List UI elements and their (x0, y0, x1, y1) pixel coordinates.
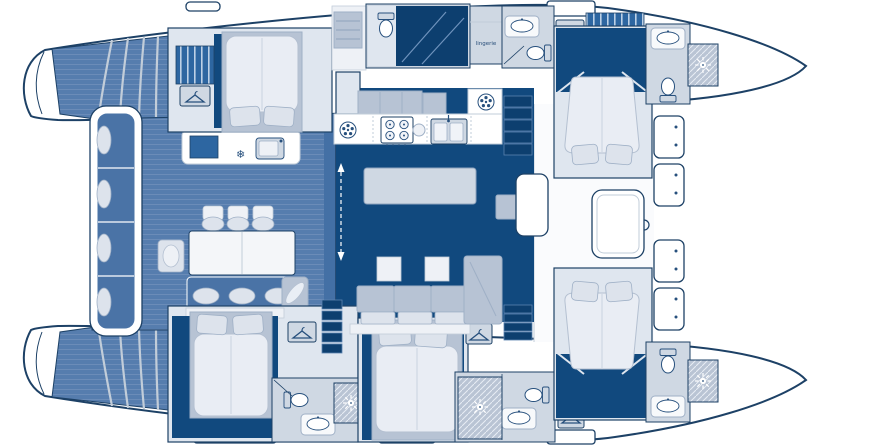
stove-burners-icon (381, 117, 413, 146)
starboard-stern-steps (52, 327, 168, 410)
washbasin-icon (651, 396, 685, 417)
double-bed (372, 320, 462, 440)
starboard-forward-cabin (554, 268, 652, 420)
pillow (229, 106, 260, 127)
deck-hatch (654, 240, 684, 282)
starboard-mid-head (455, 372, 555, 442)
pillow (232, 314, 263, 335)
washbasin-icon (651, 28, 685, 49)
vent-fan-icon (340, 122, 356, 138)
starboard-aft-stairs (322, 300, 342, 353)
pillow (263, 106, 294, 127)
forward-seat (516, 174, 548, 236)
saloon-landing (336, 72, 360, 114)
cockpit-bench (90, 106, 142, 336)
port-fwd-head (502, 6, 554, 68)
galley (334, 89, 502, 146)
toilet-icon (378, 13, 394, 37)
lingerie-locker: lingerie (470, 6, 502, 64)
hanging-locker (288, 322, 316, 342)
starboard-bow-hatches (654, 240, 684, 330)
galley-double-sink-icon (431, 115, 467, 144)
wardrobe-strip (586, 13, 644, 26)
port-mid-head (366, 4, 470, 68)
forward-stairs-port (504, 96, 532, 155)
dining-chair (227, 206, 249, 231)
shower-sun-icon (695, 57, 711, 73)
toilet-icon (284, 392, 308, 408)
port-aft-companionway (332, 6, 366, 70)
washbasin-icon (505, 16, 539, 37)
cockpit: ❄ (90, 106, 336, 336)
catamaran-floorplan: ❄ (0, 0, 890, 446)
starboard-aft-head (272, 378, 370, 442)
double-bed (190, 312, 272, 418)
lingerie-label: lingerie (476, 41, 497, 47)
side-seat (158, 240, 184, 272)
deck-hatch (654, 116, 684, 158)
corner-seat (282, 277, 308, 309)
pillow (196, 314, 227, 335)
snowflake-icon: ❄ (236, 148, 245, 161)
saloon (334, 72, 534, 322)
cockpit-wetbar: ❄ (182, 130, 300, 164)
pillow (571, 144, 599, 165)
port-aft-cabin (168, 28, 332, 132)
shower-sun-icon (343, 395, 359, 411)
saloon-table (364, 168, 476, 204)
pillow (605, 281, 633, 302)
wardrobe (176, 46, 214, 84)
deck-hatch (654, 164, 684, 206)
double-bed (565, 77, 639, 165)
port-bow-hatches (654, 116, 684, 206)
galley-upper-cabinets (358, 91, 422, 115)
round-sink (413, 124, 425, 136)
shower-sun-icon (695, 373, 711, 389)
port-forward-cabin (554, 26, 652, 178)
toilet-icon (660, 78, 676, 102)
double-bed (222, 32, 302, 132)
double-bed (565, 281, 639, 369)
washbasin-icon (301, 414, 335, 435)
starboard-mid-stairs (504, 305, 532, 340)
pillow (605, 144, 633, 165)
floorplan-svg: ❄ (0, 0, 890, 446)
dining-chair (252, 206, 274, 231)
toilet-icon (527, 45, 551, 61)
vent-fan-icon (478, 94, 494, 110)
saloon-stool (425, 257, 449, 281)
pillow (571, 281, 599, 302)
shower-sun-icon (472, 399, 488, 415)
saloon-stool (377, 257, 401, 281)
foredeck-hatch (592, 190, 644, 258)
toilet-icon (525, 387, 549, 403)
deck-hatch (654, 288, 684, 330)
washbasin-icon (502, 408, 536, 429)
dining-chair (202, 206, 224, 231)
hanging-locker (180, 86, 210, 106)
wetbar-sink-icon (256, 138, 284, 159)
grill-module (190, 136, 218, 158)
toilet-icon (660, 349, 676, 373)
